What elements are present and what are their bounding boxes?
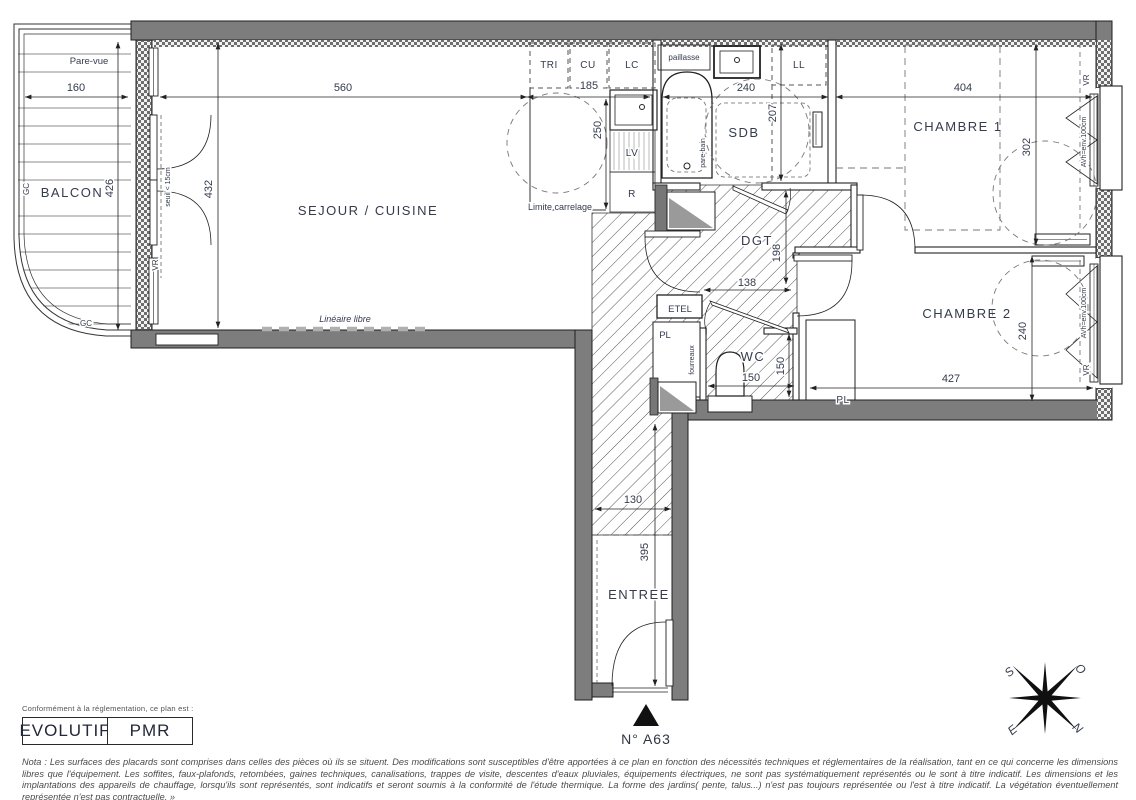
label-lv: LV — [626, 148, 639, 159]
label-tri: TRI — [540, 60, 558, 71]
label-wc: WC — [741, 349, 766, 364]
toilet-tank — [708, 396, 752, 412]
label-entree: ENTREE — [608, 587, 670, 602]
label-balcon: BALCON — [41, 185, 103, 200]
badge-pmr: PMR — [108, 717, 193, 745]
kitchen-sink-outer — [610, 90, 657, 130]
pmr-circle-cuisine — [507, 93, 607, 193]
compass-o: O — [1072, 661, 1088, 678]
label-chambre2: CHAMBRE 2 — [922, 306, 1011, 321]
legend: Conformément à la réglementation, ce pla… — [22, 704, 194, 745]
nota-text: Nota : Les surfaces des placards sont co… — [22, 757, 1118, 800]
ann-vr-ch2: VR — [1082, 364, 1091, 375]
chambre2-door-leaf — [794, 255, 852, 261]
sejour-sill — [156, 334, 218, 345]
ann-vr-ch1: VR — [1082, 74, 1091, 85]
dim-427: 427 — [942, 373, 960, 385]
label-sdb: SDB — [728, 125, 759, 140]
lot-number: N° A63 — [590, 731, 702, 747]
entree-door-leaf — [666, 620, 673, 686]
labels: BALCON SEJOUR / CUISINE CHAMBRE 1 CHAMBR… — [22, 53, 1091, 602]
entrance-arrow — [633, 704, 659, 726]
ann-pare-bain: pare-bain — [700, 138, 707, 168]
dim-240ch2: 240 — [1017, 322, 1029, 340]
dim-138: 138 — [738, 277, 756, 289]
compass-spike-sw — [1010, 696, 1047, 733]
dim-426: 426 — [104, 179, 116, 197]
label-chambre1: CHAMBRE 1 — [913, 119, 1002, 134]
ann-vr-sejour: VR — [151, 259, 160, 270]
entree-door-arc — [612, 622, 666, 686]
ann-fourreaux: fourreaux — [689, 345, 696, 375]
dim-240sdb: 240 — [737, 82, 755, 94]
label-r: R — [628, 189, 636, 200]
shaft-bar-1 — [655, 185, 667, 233]
ch2-shutter-housing — [1100, 256, 1122, 384]
ann-gc-bas: GC — [80, 319, 92, 328]
wall-entree-stub — [592, 683, 613, 697]
compass-s: S — [1002, 664, 1017, 680]
sink-drain — [640, 105, 645, 110]
chambre2-door-arc — [797, 261, 852, 316]
ann-avh-ch2: AVh=env.100cm — [1081, 288, 1088, 339]
kitchen-sink-inner — [615, 95, 652, 125]
dimension-lines — [25, 42, 1093, 686]
ann-pare-vue: Pare-vue — [70, 56, 109, 67]
compass-spike-nw — [1010, 663, 1047, 700]
dim-198: 198 — [771, 244, 783, 262]
dim-207: 207 — [767, 104, 779, 122]
dim-302: 302 — [1021, 138, 1033, 156]
wall-entree-right — [672, 400, 688, 700]
dim-130: 130 — [624, 494, 642, 506]
label-sejour: SEJOUR / CUISINE — [298, 203, 438, 218]
ch1-bed — [905, 45, 1000, 230]
ann-lineaire-libre: Linéaire libre — [319, 314, 371, 324]
label-cu: CU — [580, 60, 595, 71]
sejour-hall-door-leaf — [645, 231, 700, 237]
badge-evolutif: EVOLUTIF — [22, 717, 108, 745]
label-pl-ch2: PL — [836, 395, 849, 406]
balcony-door-leaf2 — [150, 180, 157, 245]
dim-250: 250 — [592, 121, 604, 139]
ann-avh-ch1: AVh=env.100cm — [1081, 117, 1088, 168]
dim-560: 560 — [334, 82, 352, 94]
chambre1-door-arc — [860, 195, 915, 250]
balcony-door-leaf1 — [150, 115, 157, 180]
ann-limite-carrelage: Limite carrelage — [528, 202, 592, 212]
compass-rose: S O E N — [1002, 661, 1089, 738]
dim-185: 185 — [580, 80, 598, 92]
dim-395: 395 — [639, 543, 651, 561]
label-lc: LC — [625, 60, 639, 71]
label-ll: LL — [793, 60, 805, 71]
compass-n: N — [1070, 720, 1086, 736]
dim-404: 404 — [954, 82, 972, 94]
label-dgt: DGT — [741, 233, 773, 248]
dim-150h: 150 — [742, 372, 760, 384]
wall-entree-left — [575, 330, 592, 700]
label-pl-hall: PL — [659, 330, 671, 341]
bathtub-drain — [684, 163, 690, 169]
sdb-radiator — [813, 112, 822, 147]
dim-432: 432 — [203, 180, 215, 198]
ch1-shutter-housing — [1100, 86, 1122, 190]
wall-top — [131, 21, 1112, 40]
label-etel: ETEL — [668, 304, 692, 315]
floor-plan-drawing: BALCON SEJOUR / CUISINE CHAMBRE 1 CHAMBR… — [0, 0, 1136, 800]
floor-plan-page: BALCON SEJOUR / CUISINE CHAMBRE 1 CHAMBR… — [0, 0, 1136, 800]
balcony-door-arc1 — [157, 115, 211, 169]
shaft-bar-2 — [650, 378, 658, 415]
legend-intro: Conformément à la réglementation, ce pla… — [22, 704, 194, 713]
ann-gc-vertical: GC — [22, 183, 31, 195]
label-paillasse: paillasse — [668, 53, 700, 62]
dim-150v: 150 — [775, 357, 787, 375]
chambre1-door-leaf — [857, 195, 863, 250]
dim-160: 160 — [67, 82, 85, 94]
washbasin-drain — [735, 58, 740, 63]
ann-seuil: seuil < 15cm — [165, 167, 172, 207]
